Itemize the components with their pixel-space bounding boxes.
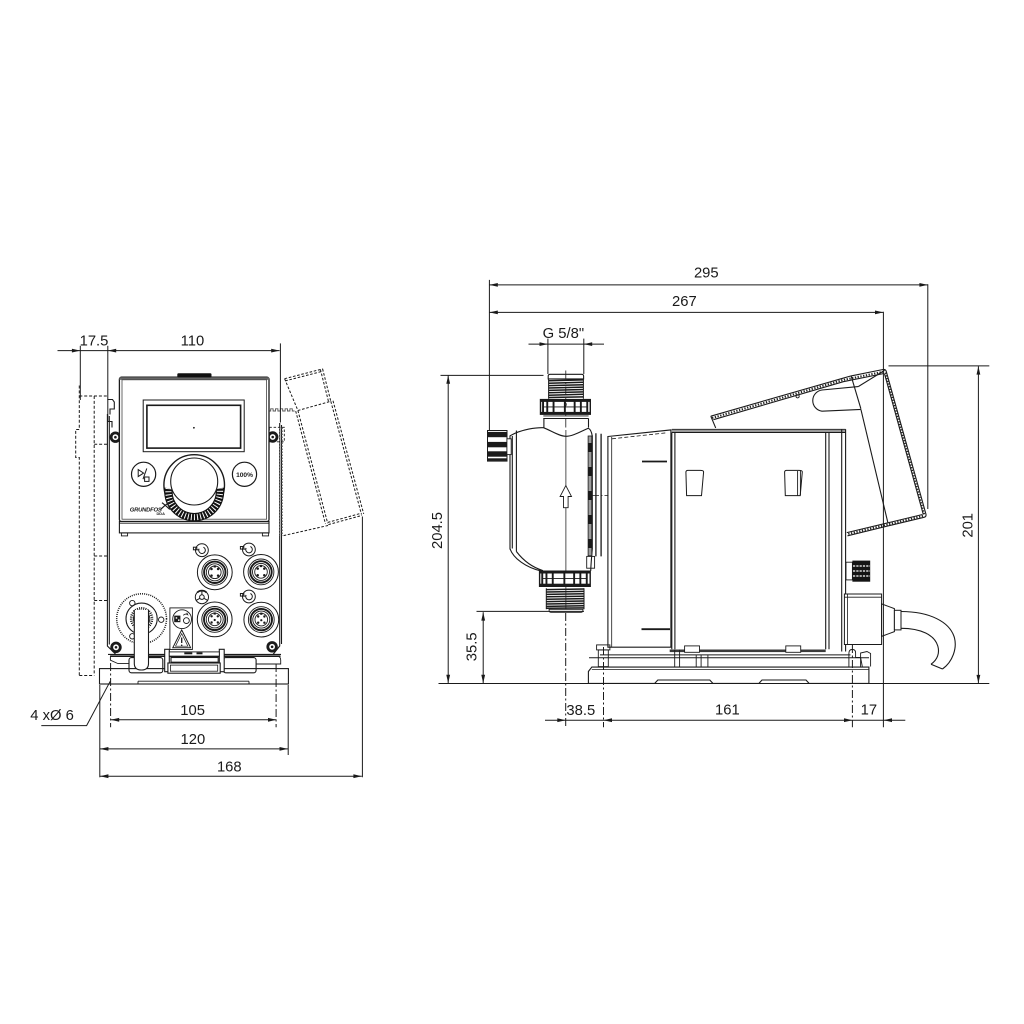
svg-text:267: 267: [672, 294, 697, 310]
svg-text:168: 168: [217, 759, 242, 775]
svg-text:105: 105: [180, 703, 205, 719]
svg-text:35.5: 35.5: [465, 632, 481, 661]
svg-text:4 xØ 6: 4 xØ 6: [30, 708, 74, 724]
svg-text:161: 161: [715, 702, 740, 718]
svg-text:204.5: 204.5: [430, 512, 446, 549]
svg-text:G 5/8": G 5/8": [543, 326, 584, 342]
svg-text:120: 120: [181, 732, 206, 748]
svg-text:38.5: 38.5: [566, 703, 595, 719]
svg-text:201: 201: [961, 513, 977, 538]
svg-text:17: 17: [861, 703, 877, 719]
svg-text:295: 295: [694, 266, 719, 282]
svg-text:DDA: DDA: [157, 511, 166, 516]
svg-text:110: 110: [181, 333, 205, 349]
svg-text:100%: 100%: [236, 472, 253, 479]
svg-text:17.5: 17.5: [80, 333, 109, 349]
